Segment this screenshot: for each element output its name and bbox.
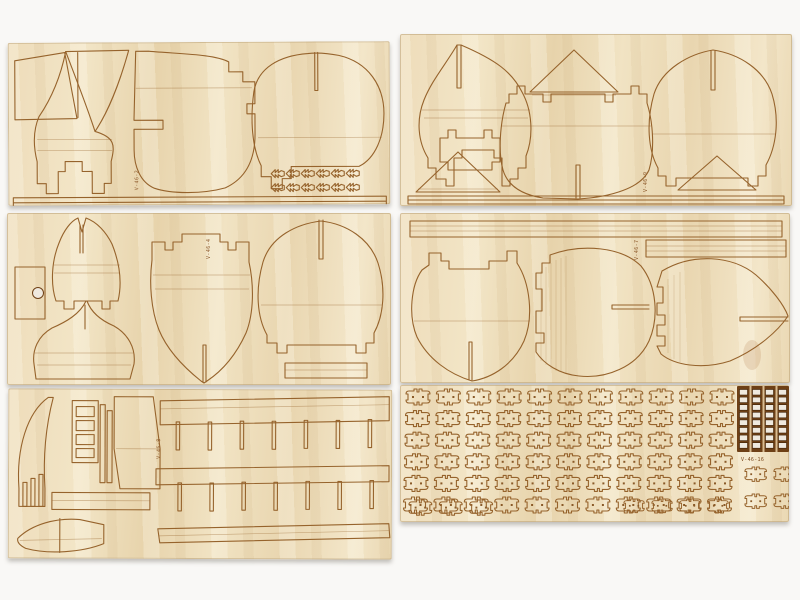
spacer-bar-part: [52, 492, 150, 509]
leaf-bulkhead-part: [657, 259, 788, 366]
small-fitting: [618, 411, 642, 427]
small-fitting: [436, 389, 460, 405]
cleat-part: [286, 170, 299, 178]
small-fitting: [527, 411, 551, 427]
grating-hole: [740, 412, 748, 418]
cleat-part: [316, 183, 329, 191]
keel-strips-part: [100, 405, 112, 483]
short-strip-part: [646, 240, 786, 257]
small-fitting: [710, 411, 734, 427]
grating-hole: [753, 443, 761, 449]
small-fitting: [434, 475, 458, 491]
small-fitting: [710, 389, 734, 405]
small-fitting: [680, 389, 704, 405]
small-fitting: [647, 475, 671, 491]
grating-hole: [779, 397, 787, 403]
small-fitting: [526, 454, 550, 470]
triangle-part-mid: [530, 50, 618, 95]
small-fitting: [619, 389, 643, 405]
small-fitting: [558, 389, 582, 405]
cleat-part: [346, 169, 359, 177]
grating-hole: [766, 397, 774, 403]
small-fitting: [526, 475, 550, 491]
keel-plate-part: [114, 397, 160, 489]
small-fitting: [587, 432, 611, 448]
small-fitting: [434, 497, 458, 513]
grating-hole: [740, 390, 748, 396]
sheet-id-engraving: V-46-7: [634, 240, 640, 260]
slotted-deck-beam-lower-part: [156, 465, 390, 544]
small-fitting: [406, 389, 430, 405]
grating-hole: [766, 428, 774, 434]
small-fitting: [588, 411, 612, 427]
small-fitting: [588, 389, 612, 405]
round-bulkhead-part: [649, 50, 776, 186]
wood-knot: [743, 340, 761, 370]
grating-hole: [740, 428, 748, 434]
sheet-id-engraving: V-46-8: [156, 438, 162, 458]
edge-strips-part: [13, 196, 386, 206]
grating-hole: [766, 420, 774, 426]
small-fitting: [648, 432, 672, 448]
grating-hole: [753, 390, 761, 396]
round-bulkhead-frame-part: [252, 52, 385, 189]
small-fitting: [404, 497, 428, 513]
small-fitting: [495, 497, 519, 513]
grating-strips-part: [737, 386, 789, 452]
sheet-id-engraving: V-46-9: [643, 172, 649, 192]
small-fitting: [470, 500, 493, 515]
small-fitting: [466, 411, 490, 427]
grating-hole: [766, 390, 774, 396]
grating-hole: [779, 443, 787, 449]
hull-cross-section-part: [34, 301, 135, 379]
small-fitting: [745, 494, 767, 508]
small-fitting: [556, 475, 580, 491]
grating-hole: [779, 390, 787, 396]
grating-hole: [766, 435, 774, 441]
cleat-part: [316, 169, 329, 177]
small-fitting: [679, 432, 703, 448]
small-fitting: [496, 454, 520, 470]
small-fitting: [679, 411, 703, 427]
long-strip-part: [410, 221, 782, 237]
gourd-bulkhead-part: [536, 248, 655, 376]
small-fitting: [466, 432, 490, 448]
small-fitting: [527, 432, 551, 448]
plywood-sheet-bottom-right: V-46-16: [400, 385, 789, 522]
grating-hole: [766, 443, 774, 449]
notched-bulkhead-part: [500, 86, 652, 199]
small-fitting: [556, 497, 580, 513]
small-fitting: [435, 454, 459, 470]
small-fitting: [557, 432, 581, 448]
sheet-id-engraving: V-46-16: [741, 457, 764, 463]
small-fitting: [405, 454, 429, 470]
small-fitting: [678, 475, 702, 491]
curved-stem-part: [18, 397, 53, 506]
small-fitting: [618, 432, 642, 448]
plywood-sheet-middle-right: V-46-7: [400, 213, 790, 383]
grating-hole: [779, 428, 787, 434]
small-fitting: [435, 432, 459, 448]
small-fitting: [495, 475, 519, 491]
small-fitting: [587, 454, 611, 470]
mast-sail-triangle-part: [66, 50, 129, 131]
small-fitting: [406, 411, 430, 427]
ladder-part: [72, 401, 98, 463]
small-fitting: [709, 454, 733, 470]
tower-bulkhead-part: [151, 234, 253, 383]
small-fitting: [497, 389, 521, 405]
small-fitting: [464, 497, 488, 513]
slotted-deck-beam-upper-part: [160, 396, 389, 451]
forked-bulkhead-part: [52, 218, 120, 309]
cleat-part: [301, 169, 314, 177]
cleat-part: [271, 170, 284, 178]
small-fitting: [774, 494, 789, 508]
plywood-sheet-middle-left: V-46-4: [7, 213, 391, 385]
sheet-id-engraving: V-46-2: [134, 170, 140, 190]
cleat-part: [331, 183, 344, 191]
photo-of-laser-cut-sheets: V-46-2: [0, 0, 800, 600]
small-fitting: [404, 475, 428, 491]
cleat-part: [346, 183, 359, 191]
stern-panel-part: [15, 53, 77, 120]
small-fitting: [745, 467, 767, 481]
round-bulkhead-part: [258, 220, 383, 353]
round-bulkhead-part: [412, 251, 530, 381]
small-fitting: [525, 497, 549, 513]
onion-bulkhead-part: [419, 45, 531, 186]
triangle-part-right: [678, 156, 756, 190]
small-strip-part: [285, 363, 367, 378]
grating-hole: [740, 443, 748, 449]
bulkhead-frame-with-tabs-part: [134, 51, 256, 193]
small-fitting: [678, 454, 702, 470]
small-fitting: [774, 467, 789, 481]
small-fitting: [649, 389, 673, 405]
grating-hole: [740, 435, 748, 441]
cleat-part: [286, 184, 299, 192]
plywood-sheet-bottom-left: V-46-8: [8, 388, 393, 559]
grating-hole: [740, 397, 748, 403]
small-fitting: [617, 475, 641, 491]
small-fitting: [617, 454, 641, 470]
grating-hole: [753, 405, 761, 411]
small-fitting: [467, 389, 491, 405]
small-fitting: [586, 475, 610, 491]
plywood-sheet-top-right: V-46-9: [400, 34, 792, 206]
grating-hole: [766, 405, 774, 411]
plywood-sheet-top-left: V-46-2: [8, 41, 391, 206]
small-fitting: [496, 432, 520, 448]
grating-hole: [779, 420, 787, 426]
small-fitting: [497, 411, 521, 427]
grating-hole: [779, 412, 787, 418]
grating-hole: [753, 397, 761, 403]
small-fitting: [405, 432, 429, 448]
sheet-id-engraving: V-46-4: [206, 239, 212, 259]
small-fitting: [648, 454, 672, 470]
cleat-part: [301, 183, 314, 191]
small-hull-part: [18, 518, 104, 552]
grating-hole: [779, 435, 787, 441]
small-fitting: [465, 454, 489, 470]
grating-hole: [766, 412, 774, 418]
small-fitting: [557, 454, 581, 470]
cleat-part: [331, 169, 344, 177]
grating-hole: [779, 405, 787, 411]
small-fitting: [409, 500, 432, 515]
grating-hole: [753, 420, 761, 426]
small-fitting: [649, 411, 673, 427]
small-fitting: [708, 475, 732, 491]
small-fitting: [436, 411, 460, 427]
grating-hole: [740, 405, 748, 411]
grating-hole: [753, 428, 761, 434]
small-fitting: [709, 432, 733, 448]
grating-hole: [740, 420, 748, 426]
grating-hole: [753, 435, 761, 441]
small-fitting: [558, 411, 582, 427]
small-fitting: [528, 389, 552, 405]
small-fitting: [586, 497, 610, 513]
rectangle-with-hole-part: [15, 267, 45, 319]
grating-hole: [753, 412, 761, 418]
small-fitting: [439, 500, 462, 515]
small-fitting: [465, 475, 489, 491]
